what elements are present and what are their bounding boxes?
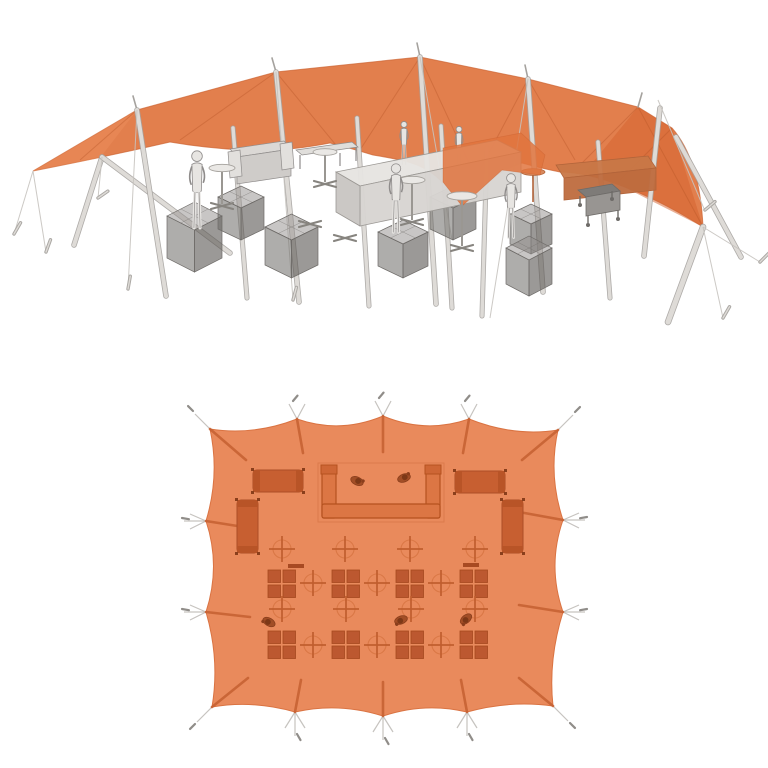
person-torso [401, 128, 407, 145]
plan-ottoman-cube [475, 585, 488, 598]
plan-side-table [463, 563, 479, 567]
plan-sofa-body [253, 470, 303, 492]
plan-ottoman-cube [347, 646, 360, 659]
plan-sofa-arm [253, 470, 260, 492]
plan-ground-peg [190, 724, 195, 729]
plan-sofa-foot [235, 498, 238, 501]
plan-guy-rope [461, 404, 469, 419]
plan-sofa-foot [500, 552, 503, 555]
plan-sofa [453, 469, 507, 495]
guy-rope [14, 171, 33, 234]
person-head [192, 151, 203, 162]
person-head [456, 126, 462, 132]
plan-sofa-foot [257, 552, 260, 555]
person-arm [202, 166, 204, 182]
plan-sofa-foot [453, 469, 456, 472]
plan-sofa-foot [453, 492, 456, 495]
plan-sofa-body [502, 500, 523, 553]
peak-pole-tip [638, 93, 642, 107]
plan-ottoman-cube [268, 570, 281, 583]
plan-ottoman-cube [347, 585, 360, 598]
trolley-wheel [578, 203, 582, 207]
plan-ottoman-cube [396, 585, 409, 598]
plan-side-table [288, 564, 304, 568]
plan-guy-rope [563, 605, 579, 612]
plan-ground-peg [379, 393, 383, 398]
plan-ottoman-cube [396, 570, 409, 583]
guy-rope [33, 171, 46, 252]
plan-ottoman-cube [460, 585, 473, 598]
plan-ground-peg [182, 518, 189, 519]
plan-sofa [500, 498, 525, 555]
plan-ottoman-cube [347, 631, 360, 644]
plan-ottoman-cube [475, 570, 488, 583]
plan-guy-rope [383, 401, 391, 416]
plan-ottoman-cube [283, 646, 296, 659]
plan-ground-peg [580, 517, 587, 518]
plan-guy-rope [563, 513, 579, 520]
plan-bar-counter [322, 504, 440, 518]
plan-ottoman-cube [475, 631, 488, 644]
plan-ottoman-cube [411, 646, 424, 659]
plan-guy-rope [373, 716, 383, 732]
plan-sofa-body [237, 500, 258, 553]
plan-ottoman-cube [283, 631, 296, 644]
plan-sofa-foot [251, 468, 254, 471]
plan-sofa-foot [522, 552, 525, 555]
plan-guy-rope [295, 712, 305, 728]
plan-ottoman-cube [283, 570, 296, 583]
tent-pole [74, 157, 102, 245]
plan-ottoman-cube [268, 631, 281, 644]
plan-ground-peg [385, 738, 389, 744]
person-head [401, 121, 407, 127]
plan-sofa-arm [237, 500, 258, 507]
plan-sofa-arm [455, 471, 462, 493]
plan-sofa-arm [296, 470, 303, 492]
plan-sofa [251, 468, 305, 494]
sofa [280, 142, 294, 170]
plan-sofa-arm [502, 546, 523, 553]
plan-guy-rope [467, 712, 477, 728]
plan-guy-rope [190, 605, 206, 612]
plan-guy-rope [289, 404, 297, 419]
person-head [391, 164, 400, 173]
plan-ground-peg [580, 609, 587, 610]
plan-guy-rope [375, 401, 383, 416]
tent-pole [668, 227, 703, 322]
person-head [507, 174, 516, 183]
plan-guy-rope [195, 414, 210, 429]
plan-ottoman-cube [411, 631, 424, 644]
plan-ground-peg [297, 734, 301, 740]
person-arm [190, 166, 192, 184]
plan-guy-rope [457, 712, 467, 728]
plan-ground-peg [465, 396, 469, 401]
plan-sofa-foot [504, 492, 507, 495]
plan-ground-peg [182, 609, 189, 610]
plan-sofa-foot [504, 469, 507, 472]
plan-ottoman-cube [283, 585, 296, 598]
plan-guy-rope [285, 712, 295, 728]
plan-ground-peg [188, 406, 193, 411]
plan-guy-rope [190, 521, 206, 529]
plan-ground-peg [575, 407, 580, 412]
trolley-wheel [616, 217, 620, 221]
person-torso [391, 174, 400, 200]
plan-guy-rope [197, 707, 212, 722]
trolley-wheel [586, 223, 590, 227]
cocktail-table [209, 164, 235, 171]
plan-ottoman-cube [332, 646, 345, 659]
plan-sofa-arm [237, 546, 258, 553]
plan-tent-fabric [206, 416, 563, 716]
plan-guy-rope [469, 404, 477, 419]
plan-guy-rope [190, 514, 206, 521]
ground-peg [723, 307, 730, 318]
plan-ottoman-cube [411, 585, 424, 598]
plan-ground-peg [293, 396, 297, 401]
trolley-wheel [610, 197, 614, 201]
illustration-canvas [0, 0, 768, 768]
plan-guy-rope [563, 520, 579, 528]
plan-ottoman-cube [347, 570, 360, 583]
plan-guy-rope [190, 612, 206, 620]
plan-ottoman-cube [332, 570, 345, 583]
ground-peg [98, 191, 108, 198]
plan-ottoman-cube [268, 585, 281, 598]
plan-guy-rope [553, 706, 568, 721]
cocktail-table [447, 192, 477, 200]
plan-sofa-foot [522, 498, 525, 501]
perspective-view [14, 43, 768, 322]
plan-sofa-arm [502, 500, 523, 507]
plan-ottoman-cube [332, 631, 345, 644]
plan-sofa-foot [302, 491, 305, 494]
plan-bar-end-unit [321, 465, 337, 474]
plan-view [182, 393, 587, 744]
plan-bar-end-unit [425, 465, 441, 474]
plan-guy-rope [558, 415, 573, 430]
person-torso [507, 184, 516, 209]
plan-ottoman-cube [396, 646, 409, 659]
sofa [228, 150, 242, 178]
plan-sofa-foot [257, 498, 260, 501]
cocktail-table [313, 149, 337, 156]
plan-guy-rope [563, 612, 579, 620]
plan-guy-rope [383, 716, 393, 732]
plan-sofa-foot [302, 468, 305, 471]
plan-ottoman-cube [396, 631, 409, 644]
plan-ottoman-cube [411, 570, 424, 583]
plan-ottoman-cube [332, 585, 345, 598]
plan-ottoman-cube [460, 646, 473, 659]
plan-ground-peg [469, 734, 473, 740]
plan-sofa-foot [500, 498, 503, 501]
guy-rope [703, 227, 760, 262]
plan-ottoman-cube [268, 646, 281, 659]
plan-ground-peg [570, 723, 575, 728]
guy-rope [703, 227, 723, 318]
plan-ottoman-cube [460, 631, 473, 644]
plan-guy-rope [297, 404, 305, 419]
plan-sofa-foot [235, 552, 238, 555]
plan-sofa-body [455, 471, 505, 493]
plan-sofa-foot [251, 491, 254, 494]
plan-ottoman-cube [460, 570, 473, 583]
plan-sofa-arm [498, 471, 505, 493]
plan-sofa [235, 498, 260, 555]
person-torso [192, 163, 202, 193]
plan-ottoman-cube [475, 646, 488, 659]
stretch-tent-illustration [0, 0, 768, 768]
